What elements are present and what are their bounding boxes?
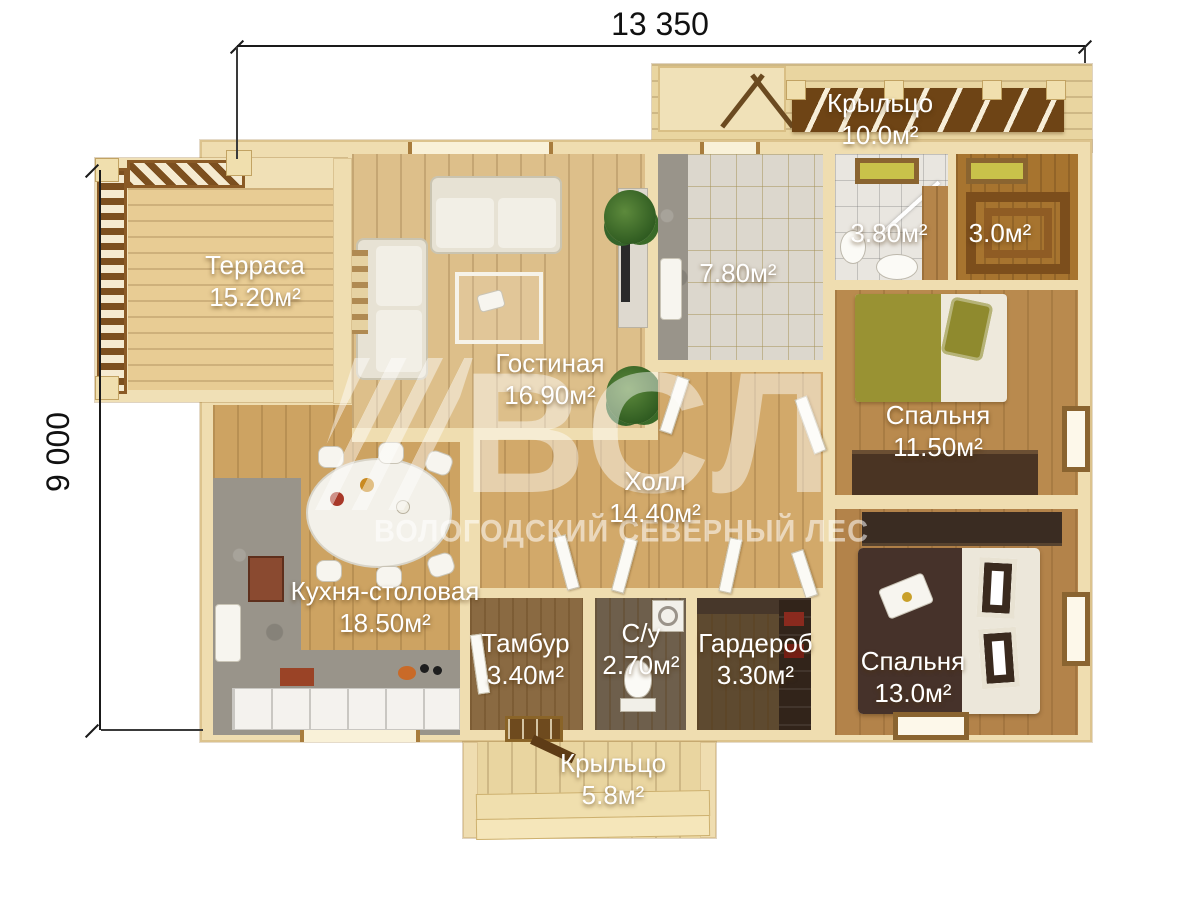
skylight (966, 158, 1028, 184)
bottle (420, 664, 429, 673)
dimension-height-label: 9 000 (40, 372, 80, 532)
pergola-post (982, 80, 1002, 100)
sofa-seat (376, 310, 422, 372)
bottle (433, 666, 442, 675)
room-area: 3.30м² (698, 660, 813, 692)
room-name: С/у (595, 618, 687, 650)
extension-line (101, 729, 203, 731)
chair (318, 446, 344, 468)
room-name: Холл (565, 466, 745, 498)
room-area: 15.20м² (165, 282, 345, 314)
room-name: Тамбур (468, 628, 583, 660)
room-label-porch-bottom: Крыльцо 5.8м² (528, 748, 698, 811)
sofa-seat (498, 198, 556, 248)
plate (396, 500, 410, 514)
room-label-bath: 3.80м² (833, 218, 945, 250)
room-area: 13.0м² (848, 678, 978, 710)
terrace-railing-left (97, 168, 127, 394)
room-area: 11.50м² (848, 432, 1028, 464)
living-window (408, 142, 553, 154)
bread-box (280, 668, 314, 686)
toilet-tank (620, 698, 656, 712)
floor-plan: Терраса 15.20м² Гостиная 16.90м² Крыльцо… (0, 0, 1200, 900)
window (1062, 406, 1090, 472)
room-name: Терраса (165, 250, 345, 282)
plant (604, 190, 656, 244)
room-name: Спальня (848, 646, 978, 678)
pergola-post (1046, 80, 1066, 100)
room-name: Кухня-столовая (280, 576, 490, 608)
sofa-seat (376, 246, 422, 306)
fridge (215, 604, 241, 662)
room-name: Крыльцо (528, 748, 698, 780)
room-area: 3.80м² (833, 218, 945, 250)
room-area: 18.50м² (280, 608, 490, 640)
room-area: 5.8м² (528, 780, 698, 812)
dimension-width-label: 13 350 (540, 6, 780, 43)
bed-duvet (855, 294, 941, 402)
room-area: 7.80м² (668, 258, 808, 290)
console (862, 512, 1062, 546)
room-label-wc: С/у 2.70м² (595, 618, 687, 681)
dimension-tick (85, 724, 99, 738)
room-area: 3.40м² (468, 660, 583, 692)
room-label-vestibule: Тамбур 3.40м² (468, 628, 583, 691)
room-name: Крыльцо (795, 88, 965, 120)
room-label-terrace: Терраса 15.20м² (165, 250, 345, 313)
window (893, 712, 969, 740)
room-name: Спальня (848, 400, 1028, 432)
dining-table (306, 458, 452, 568)
room-area: 2.70м² (595, 650, 687, 682)
stove (248, 556, 284, 602)
room-label-kitchen: Кухня-столовая 18.50м² (280, 576, 490, 639)
sofa (430, 176, 562, 254)
room-label-wardrobe: Гардероб 3.30м² (698, 628, 813, 691)
pillow (976, 557, 1017, 619)
plate (360, 478, 374, 492)
room-area: 14.40м² (565, 498, 745, 530)
extension-line (236, 47, 238, 159)
room-area: 16.90м² (460, 380, 640, 412)
tray-cup (902, 592, 912, 602)
wardrobe-shelf-top (697, 598, 779, 614)
room-area: 3.0м² (950, 218, 1050, 250)
fruit-bowl (398, 666, 416, 680)
room-label-780: 7.80м² (668, 258, 808, 290)
porch-step (476, 815, 710, 840)
stored-item (784, 612, 804, 626)
ladder-shelf (352, 250, 368, 334)
room-name: Гардероб (698, 628, 813, 660)
room-name: Гостиная (460, 348, 640, 380)
dimension-line-top (237, 45, 1085, 47)
dimension-line-left (99, 170, 101, 730)
room-area: 10.0м² (795, 120, 965, 152)
stone-strip (658, 154, 688, 360)
kitchen-counter (232, 688, 460, 730)
window (700, 142, 760, 154)
room-label-living: Гостиная 16.90м² (460, 348, 640, 411)
room-label-bedroom1: Спальня 11.50м² (848, 400, 1028, 463)
sofa-seat (436, 198, 494, 248)
window (1062, 592, 1090, 666)
kitchen-window (300, 730, 420, 742)
plate (330, 492, 344, 506)
room-label-hall: Холл 14.40м² (565, 466, 745, 529)
skylight (855, 158, 919, 184)
terrace-post (226, 150, 252, 176)
extension-line (1084, 47, 1086, 63)
chair (378, 442, 404, 464)
room-label-porch-top: Крыльцо 10.0м² (795, 88, 965, 151)
room-label-sauna: 3.0м² (950, 218, 1050, 250)
room-label-bedroom2: Спальня 13.0м² (848, 646, 978, 709)
pillow (978, 627, 1020, 690)
sink (876, 254, 918, 280)
